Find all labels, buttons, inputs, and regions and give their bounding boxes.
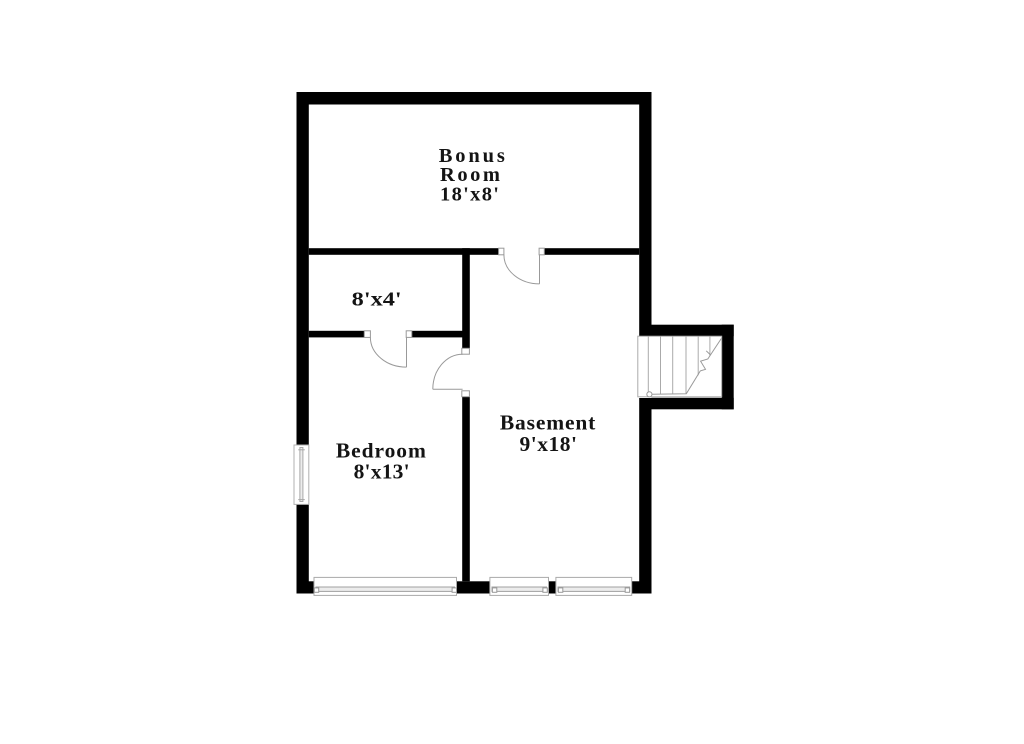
svg-text:8'x4': 8'x4' <box>352 289 402 311</box>
svg-text:18'x8': 18'x8' <box>440 184 499 206</box>
svg-text:8'x13': 8'x13' <box>354 460 410 484</box>
svg-text:9'x18': 9'x18' <box>519 432 577 456</box>
svg-text:Basement: Basement <box>500 411 596 435</box>
